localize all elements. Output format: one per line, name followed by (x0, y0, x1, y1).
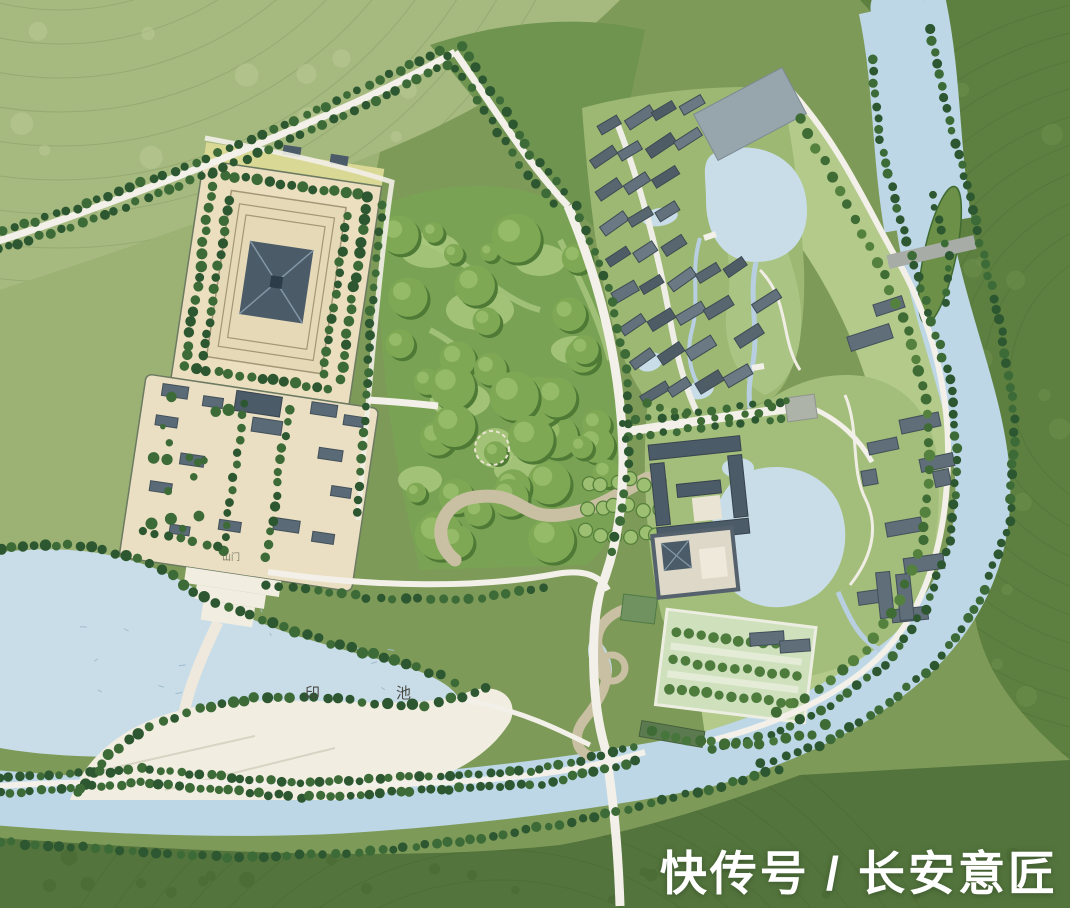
temple-gate-label: 山门 (222, 551, 240, 562)
east-courtyard-a (648, 436, 750, 543)
visitor-pavilion-green-roof (621, 594, 658, 624)
east-courtyard-b (652, 528, 738, 598)
lake-label-chi: 池 (396, 685, 412, 702)
watermark: 快传号 / 长安意匠 (660, 847, 1058, 900)
master-plan-canvas: 印 池 山门 快传号 / 长安意匠 (0, 0, 1070, 908)
lake-label-yin: 印 (305, 685, 321, 702)
site-plan-rendering: 印 池 山门 快传号 / 长安意匠 (0, 0, 1070, 908)
crossing-plaza (784, 394, 817, 422)
